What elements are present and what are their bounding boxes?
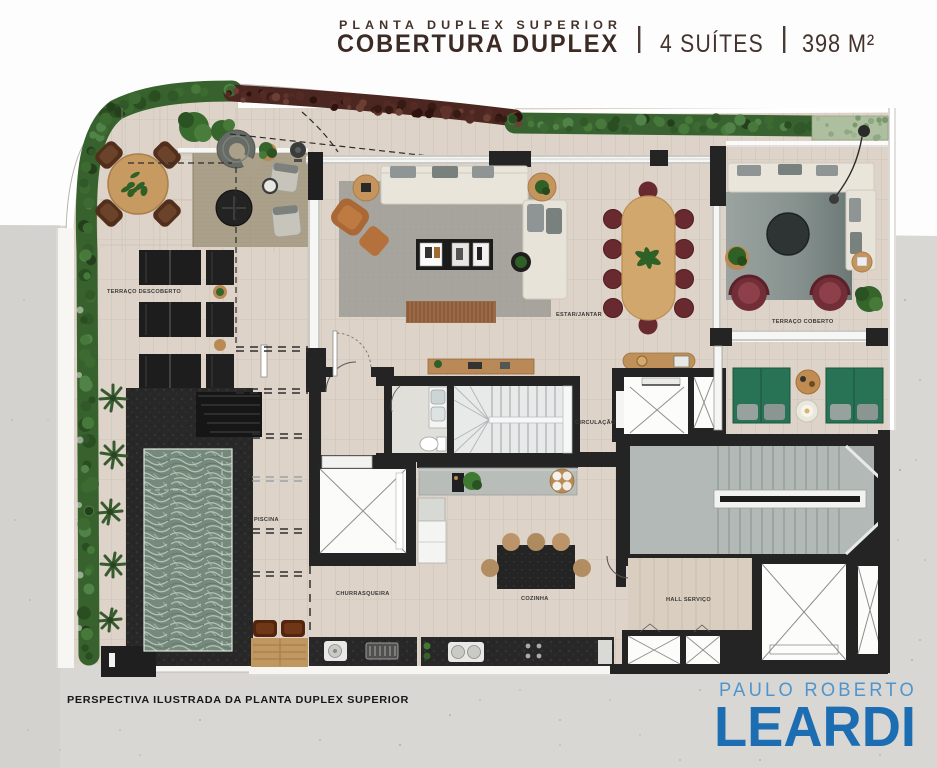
svg-text:CHURRASQUEIRA: CHURRASQUEIRA <box>336 591 390 597</box>
svg-text:ESTAR/JANTAR: ESTAR/JANTAR <box>556 312 602 318</box>
svg-text:CIRCULAÇÃO: CIRCULAÇÃO <box>575 419 616 426</box>
svg-text:HALL SERVIÇO: HALL SERVIÇO <box>666 597 711 603</box>
svg-text:COBERTURA DUPLEX: COBERTURA DUPLEX <box>337 30 619 58</box>
svg-text:PISCINA: PISCINA <box>254 517 279 523</box>
svg-text:LEARDI: LEARDI <box>714 695 916 759</box>
svg-text:PERSPECTIVA ILUSTRADA DA PLANT: PERSPECTIVA ILUSTRADA DA PLANTA DUPLEX S… <box>67 694 409 706</box>
svg-text:TERRAÇO DESCOBERTO: TERRAÇO DESCOBERTO <box>107 289 181 295</box>
svg-text:398 M²: 398 M² <box>802 30 875 58</box>
svg-text:TERRAÇO COBERTO: TERRAÇO COBERTO <box>772 319 834 325</box>
svg-text:4 SUÍTES: 4 SUÍTES <box>660 29 764 58</box>
svg-text:COZINHA: COZINHA <box>521 596 549 602</box>
